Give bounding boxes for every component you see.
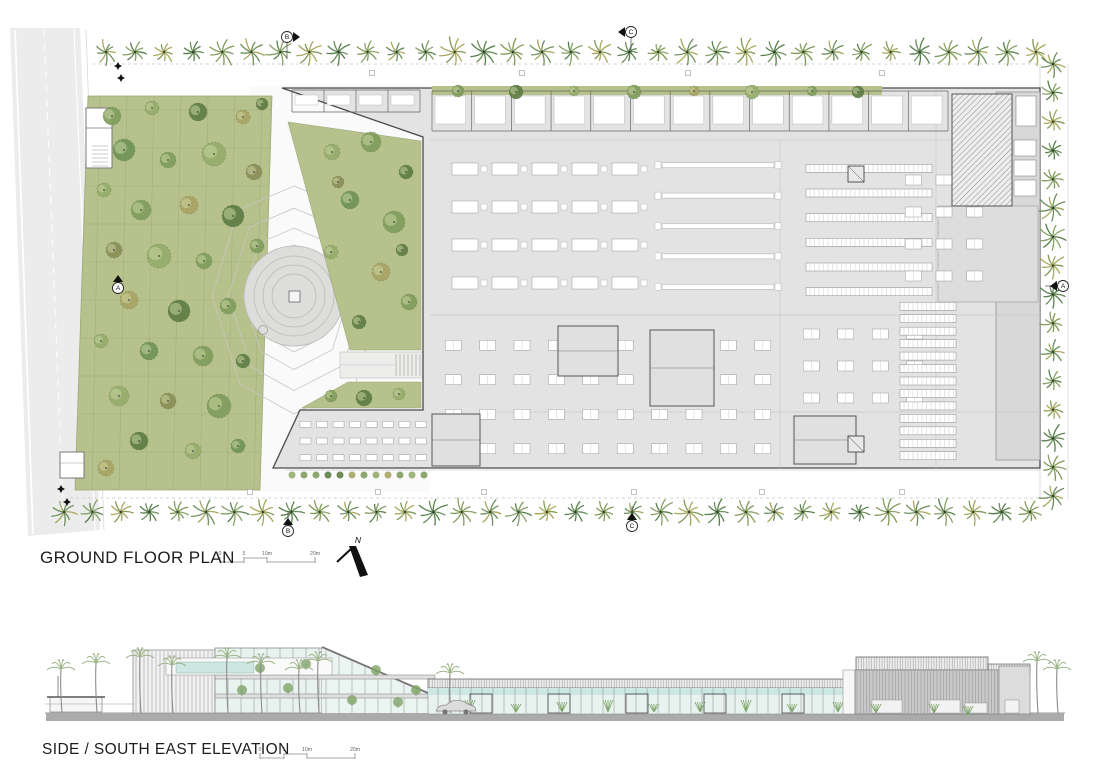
section-marker-label: C [630, 523, 635, 530]
elevation-title: SIDE / SOUTH EAST ELEVATION [42, 741, 290, 759]
scalebar-label: 5 [243, 551, 246, 557]
floor-slab [215, 675, 435, 679]
path-marker [248, 490, 253, 495]
path-marker [370, 71, 375, 76]
path-marker [880, 71, 885, 76]
section-marker-C: C [627, 506, 638, 532]
palm-row-bottom [52, 498, 1041, 525]
section-marker-label: A [116, 285, 121, 292]
path-marker [482, 490, 487, 495]
scalebar-label: 10m [302, 747, 312, 753]
elevation-drawing [45, 640, 1071, 721]
entrance-marker [114, 62, 122, 70]
section-marker-label: B [285, 34, 289, 41]
section-marker-label: B [286, 528, 290, 535]
low-glass-building [428, 679, 852, 714]
skylight-hatched-roof [952, 94, 1012, 206]
drawing-sheet: BCAABC0510m20m0510m20mN GROUND FLOOR PLA… [0, 0, 1100, 775]
gatehouse [50, 697, 102, 712]
path-marker [376, 490, 381, 495]
louver-block-right [843, 657, 1030, 715]
north-arrow: N [337, 535, 368, 577]
north-label: N [355, 535, 362, 545]
entrance-marker [117, 74, 125, 82]
path-marker [520, 71, 525, 76]
section-marker-label: A [1061, 283, 1066, 290]
section-marker-label: C [629, 29, 634, 36]
floor-slab [215, 694, 447, 698]
section-marker-A: A [1045, 281, 1069, 292]
path-marker [760, 490, 765, 495]
scalebar-label: 20m [310, 551, 320, 557]
path-marker [900, 490, 905, 495]
palm-row-top [97, 37, 1046, 66]
path-marker [632, 490, 637, 495]
scalebar-label: 10m [262, 551, 272, 557]
scalebar-label: 20m [350, 747, 360, 753]
drawing-canvas: BCAABC0510m20m0510m20mN [0, 0, 1100, 775]
plan-title: GROUND FLOOR PLAN [40, 548, 235, 568]
pool-window [176, 662, 254, 673]
path-marker [686, 71, 691, 76]
